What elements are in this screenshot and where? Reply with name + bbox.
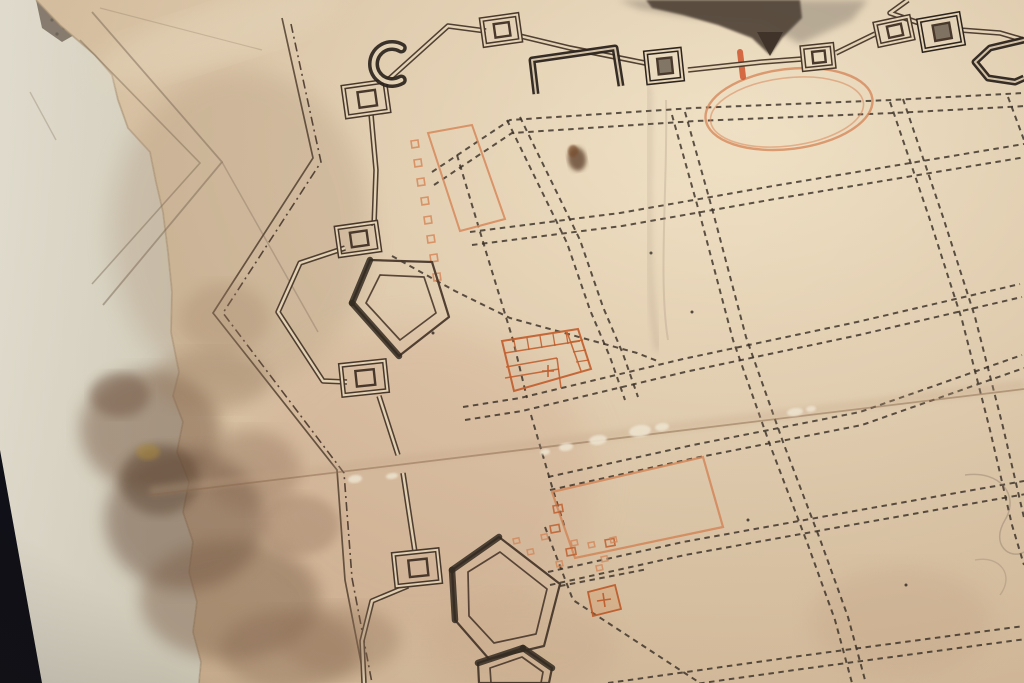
photo-vignette (0, 0, 1024, 683)
vignette-overlay (0, 0, 1024, 683)
photo-of-historic-fortification-plan (0, 0, 1024, 683)
map-drawing-canvas (0, 0, 1024, 683)
